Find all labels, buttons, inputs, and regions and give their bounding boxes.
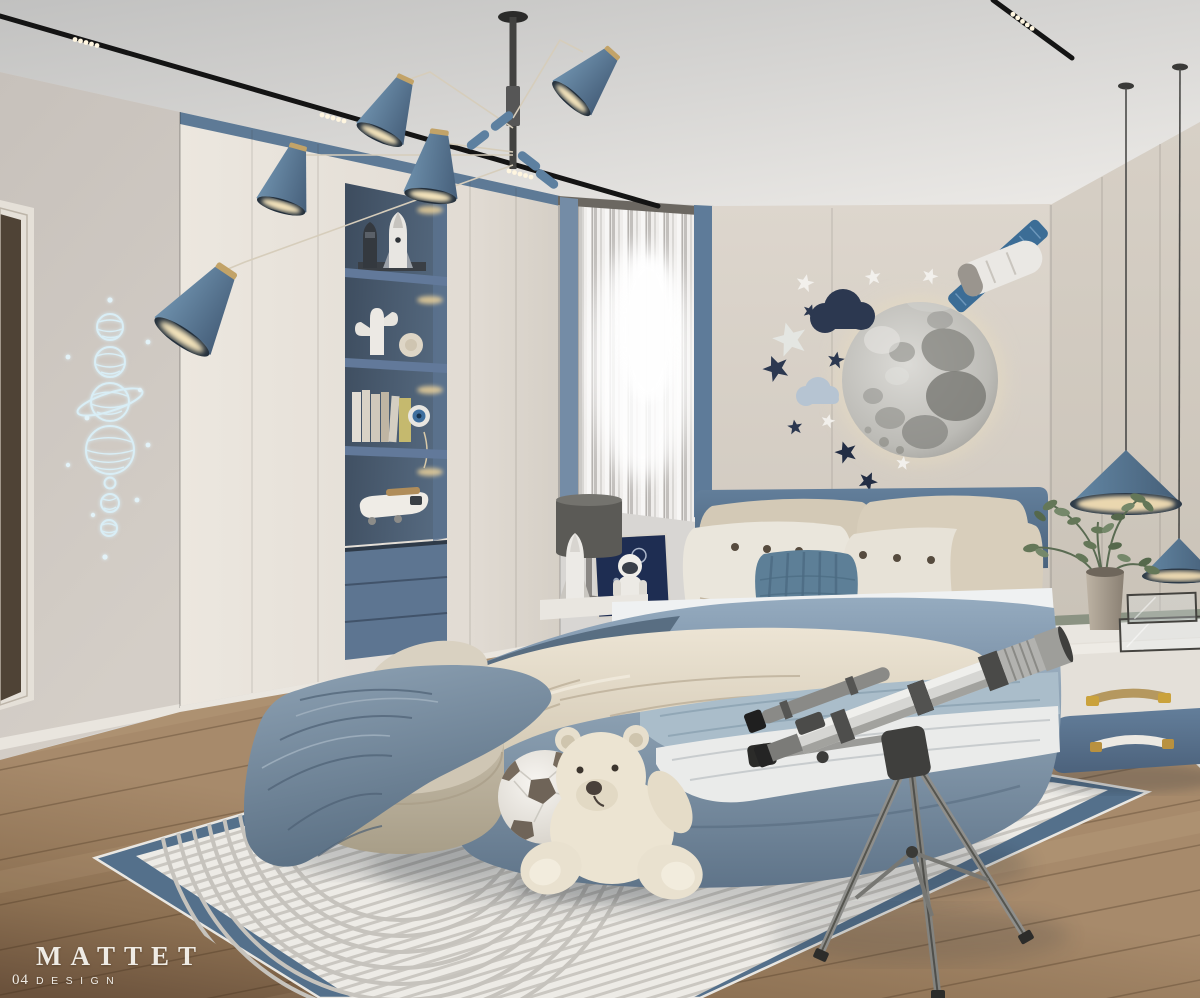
door [0, 200, 34, 710]
window-trim-right [694, 205, 714, 523]
display-niche [345, 183, 447, 546]
bedroom-render: MATTET 04 DESIGN [0, 0, 1200, 998]
mount-head [880, 725, 932, 782]
scene-canvas [0, 0, 1200, 998]
watermark-number: 04 [12, 973, 29, 988]
window-curtain [550, 190, 720, 530]
glass-display-boxes [1120, 593, 1200, 652]
watermark-sub: DESIGN [36, 976, 121, 987]
watermark-brand: MATTET [36, 943, 205, 970]
left-wall [0, 72, 180, 760]
wardrobe [180, 112, 560, 716]
window-trim-left [560, 197, 578, 506]
watermark: MATTET 04 DESIGN [12, 943, 205, 988]
vase [1086, 572, 1124, 630]
